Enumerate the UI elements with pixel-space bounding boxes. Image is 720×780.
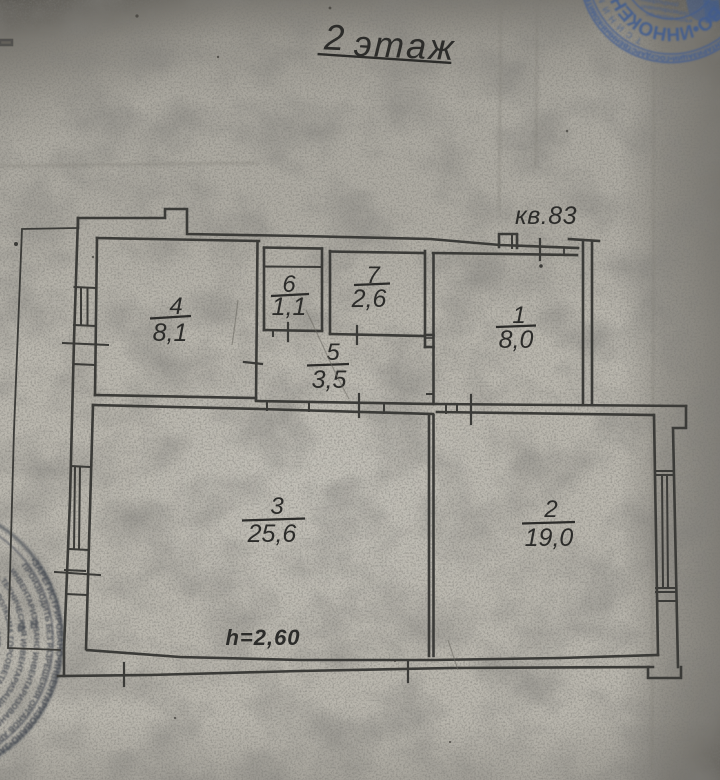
svg-text:2,6: 2,6 <box>351 285 387 313</box>
svg-text:1,1: 1,1 <box>272 293 307 321</box>
svg-text:h=2,60: h=2,60 <box>225 625 300 650</box>
svg-text:5: 5 <box>326 339 340 366</box>
svg-text:кв.83: кв.83 <box>515 202 577 230</box>
svg-text:2: 2 <box>543 496 557 523</box>
svg-text:19,0: 19,0 <box>525 524 574 552</box>
svg-text:25,6: 25,6 <box>247 520 297 548</box>
svg-text:3,5: 3,5 <box>312 366 347 394</box>
svg-text:2: 2 <box>322 16 345 58</box>
svg-text:3: 3 <box>270 493 284 520</box>
svg-text:8,1: 8,1 <box>153 319 188 347</box>
svg-text:8,0: 8,0 <box>499 326 534 354</box>
